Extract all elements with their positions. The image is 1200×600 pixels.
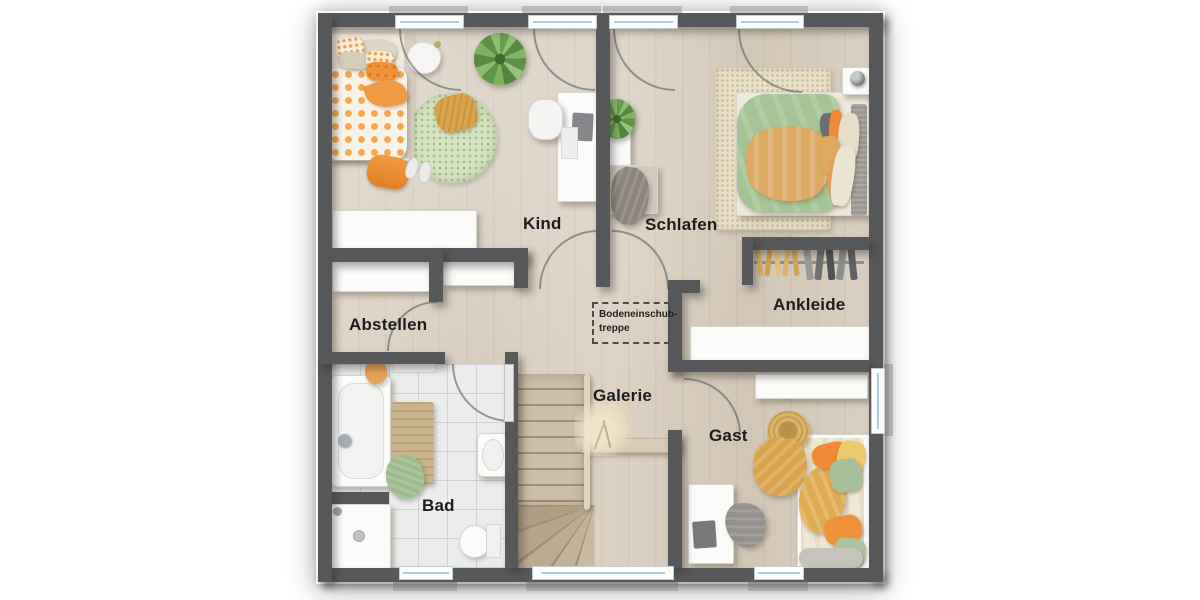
window-bottom-galerie	[532, 566, 674, 580]
room-label-bad: Bad	[422, 496, 455, 516]
sill-bottom-2	[526, 581, 678, 591]
staircase-winder-steps	[518, 486, 604, 568]
sill-right	[884, 364, 893, 436]
wall-hall-ankleide-stub	[668, 280, 700, 293]
palm-plant	[474, 33, 526, 85]
sill-bottom-1	[393, 581, 457, 591]
straw-hat-crown	[779, 422, 797, 439]
shower-drain	[353, 530, 365, 542]
wardrobe-frame-left	[742, 237, 753, 285]
bathtub-faucet	[338, 434, 351, 447]
sill-bottom-3	[748, 581, 808, 591]
kind-pillow-lumbar-orange	[366, 61, 399, 82]
room-label-kind: Kind	[523, 214, 562, 234]
washbasin-bowl	[482, 439, 504, 471]
bathtub-basin	[338, 383, 384, 479]
wardrobe-frame-top	[742, 237, 869, 250]
ankleide-cabinet	[690, 326, 871, 364]
attic-hatch-line1: Bodeneinschub-	[599, 309, 677, 320]
window-top-3	[609, 15, 678, 29]
room-label-galerie: Galerie	[593, 386, 652, 406]
window-top-2	[528, 15, 597, 29]
window-top-1	[395, 15, 464, 29]
wall-galerie-gast	[668, 430, 682, 568]
gast-sideboard	[755, 374, 868, 399]
desk-papers	[561, 127, 578, 159]
kind-wall-cabinet	[332, 210, 477, 250]
window-bottom-bad	[399, 566, 453, 580]
wall-abstellen-east	[429, 248, 443, 302]
bad-door-leaf	[504, 364, 514, 422]
outer-wall-right	[869, 13, 883, 582]
abstellen-cabinet	[332, 257, 430, 292]
gast-blanket-roll	[799, 548, 863, 568]
shower-head	[333, 507, 342, 516]
toilet-tank	[486, 524, 501, 558]
bath-knee-wall	[331, 492, 389, 504]
window-bottom-gast	[754, 566, 804, 580]
outer-wall-left	[318, 13, 332, 582]
floorplan-canvas: Kind Schlafen Abstellen Ankleide Galerie…	[0, 0, 1200, 600]
window-right-gast	[871, 368, 885, 434]
gast-pillow-green-1	[828, 457, 864, 494]
wall-abstellen-bad	[318, 352, 445, 364]
gast-desk-laptop	[692, 520, 717, 549]
attic-hatch-annotation: Bodeneinschub- treppe	[592, 302, 670, 344]
wall-ankleide-gast	[668, 360, 869, 372]
kind-desk-chair	[528, 99, 563, 140]
room-label-gast: Gast	[709, 426, 748, 446]
window-top-4	[736, 15, 804, 29]
wall-kind-south-stub	[514, 248, 528, 288]
room-label-abstellen: Abstellen	[349, 315, 427, 335]
room-label-ankleide: Ankleide	[773, 295, 845, 315]
room-label-schlafen: Schlafen	[645, 215, 717, 235]
wall-kind-schlafen	[596, 27, 610, 287]
nightstand-lamp	[850, 71, 865, 86]
attic-hatch-line2: treppe	[599, 323, 630, 334]
